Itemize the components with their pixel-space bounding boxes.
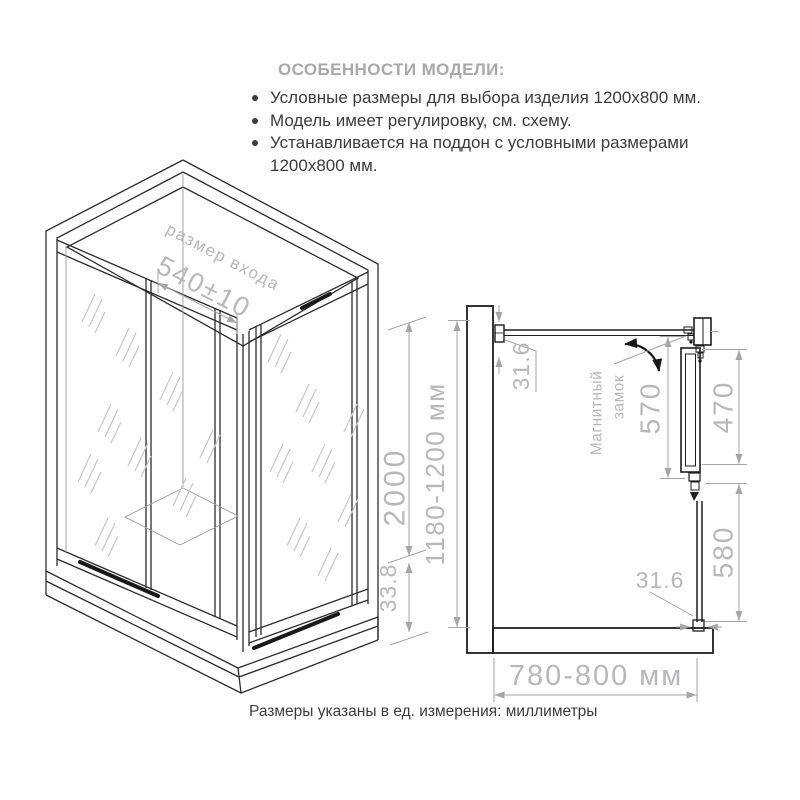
plan-top-glass-panel <box>495 325 694 342</box>
page: ОСОБЕННОСТИ МОДЕЛИ: Условные размеры для… <box>0 0 800 800</box>
plan-door-leaf-dim-group: 470 <box>702 350 747 465</box>
plan-depth-dim-group: 1180-1200 мм <box>420 321 470 628</box>
plan-top-profile-dim-group: 31.6 <box>499 305 536 392</box>
plan-bottom-profile-dim: 31.6 <box>636 567 685 593</box>
magnetic-lock-line1: Магнитный <box>589 371 606 456</box>
plan-door-leaf-dim: 470 <box>708 381 739 434</box>
plan-side-panel <box>693 501 704 631</box>
magnetic-lock-line2: замок <box>611 375 628 419</box>
units-note: Размеры указаны в ед. измерения: миллиме… <box>249 703 597 721</box>
iso-tray-height-dim: 33.8 <box>375 564 401 613</box>
plan-fixed-panel-dim-group: 580 <box>705 484 747 622</box>
door-bottom-rail-right <box>254 614 338 648</box>
door-handle <box>302 294 330 308</box>
iso-corner-post <box>237 318 249 652</box>
plan-corner-post <box>684 318 719 363</box>
plan-door-opening-dim-group: 570 <box>635 337 686 479</box>
iso-view: размер входа 540±10 2000 33.8 <box>46 160 428 693</box>
shower-tray <box>46 571 378 693</box>
plan-door-opening-dim: 570 <box>635 382 666 435</box>
technical-drawing: размер входа 540±10 2000 33.8 <box>0 0 800 800</box>
plan-width-dim: 780-800 мм <box>509 660 683 692</box>
plan-depth-dim: 1180-1200 мм <box>420 382 450 565</box>
plan-view: Магнитный замок 31.6 570 <box>420 305 747 702</box>
plan-bottom-wall <box>493 628 713 653</box>
iso-dimensions: размер входа 540±10 2000 33.8 <box>152 220 428 645</box>
plan-door-leaf <box>681 348 700 472</box>
plan-width-dim-group: 780-800 мм <box>494 658 697 702</box>
glass-hatching <box>78 294 364 581</box>
plan-fixed-panel-dim: 580 <box>708 526 739 579</box>
plan-door-hinge <box>689 473 700 501</box>
plan-top-profile-dim: 31.6 <box>508 342 534 391</box>
plan-left-wall <box>467 306 493 653</box>
iso-height-dim: 2000 <box>379 448 412 527</box>
iso-right-face-frame <box>249 272 368 643</box>
